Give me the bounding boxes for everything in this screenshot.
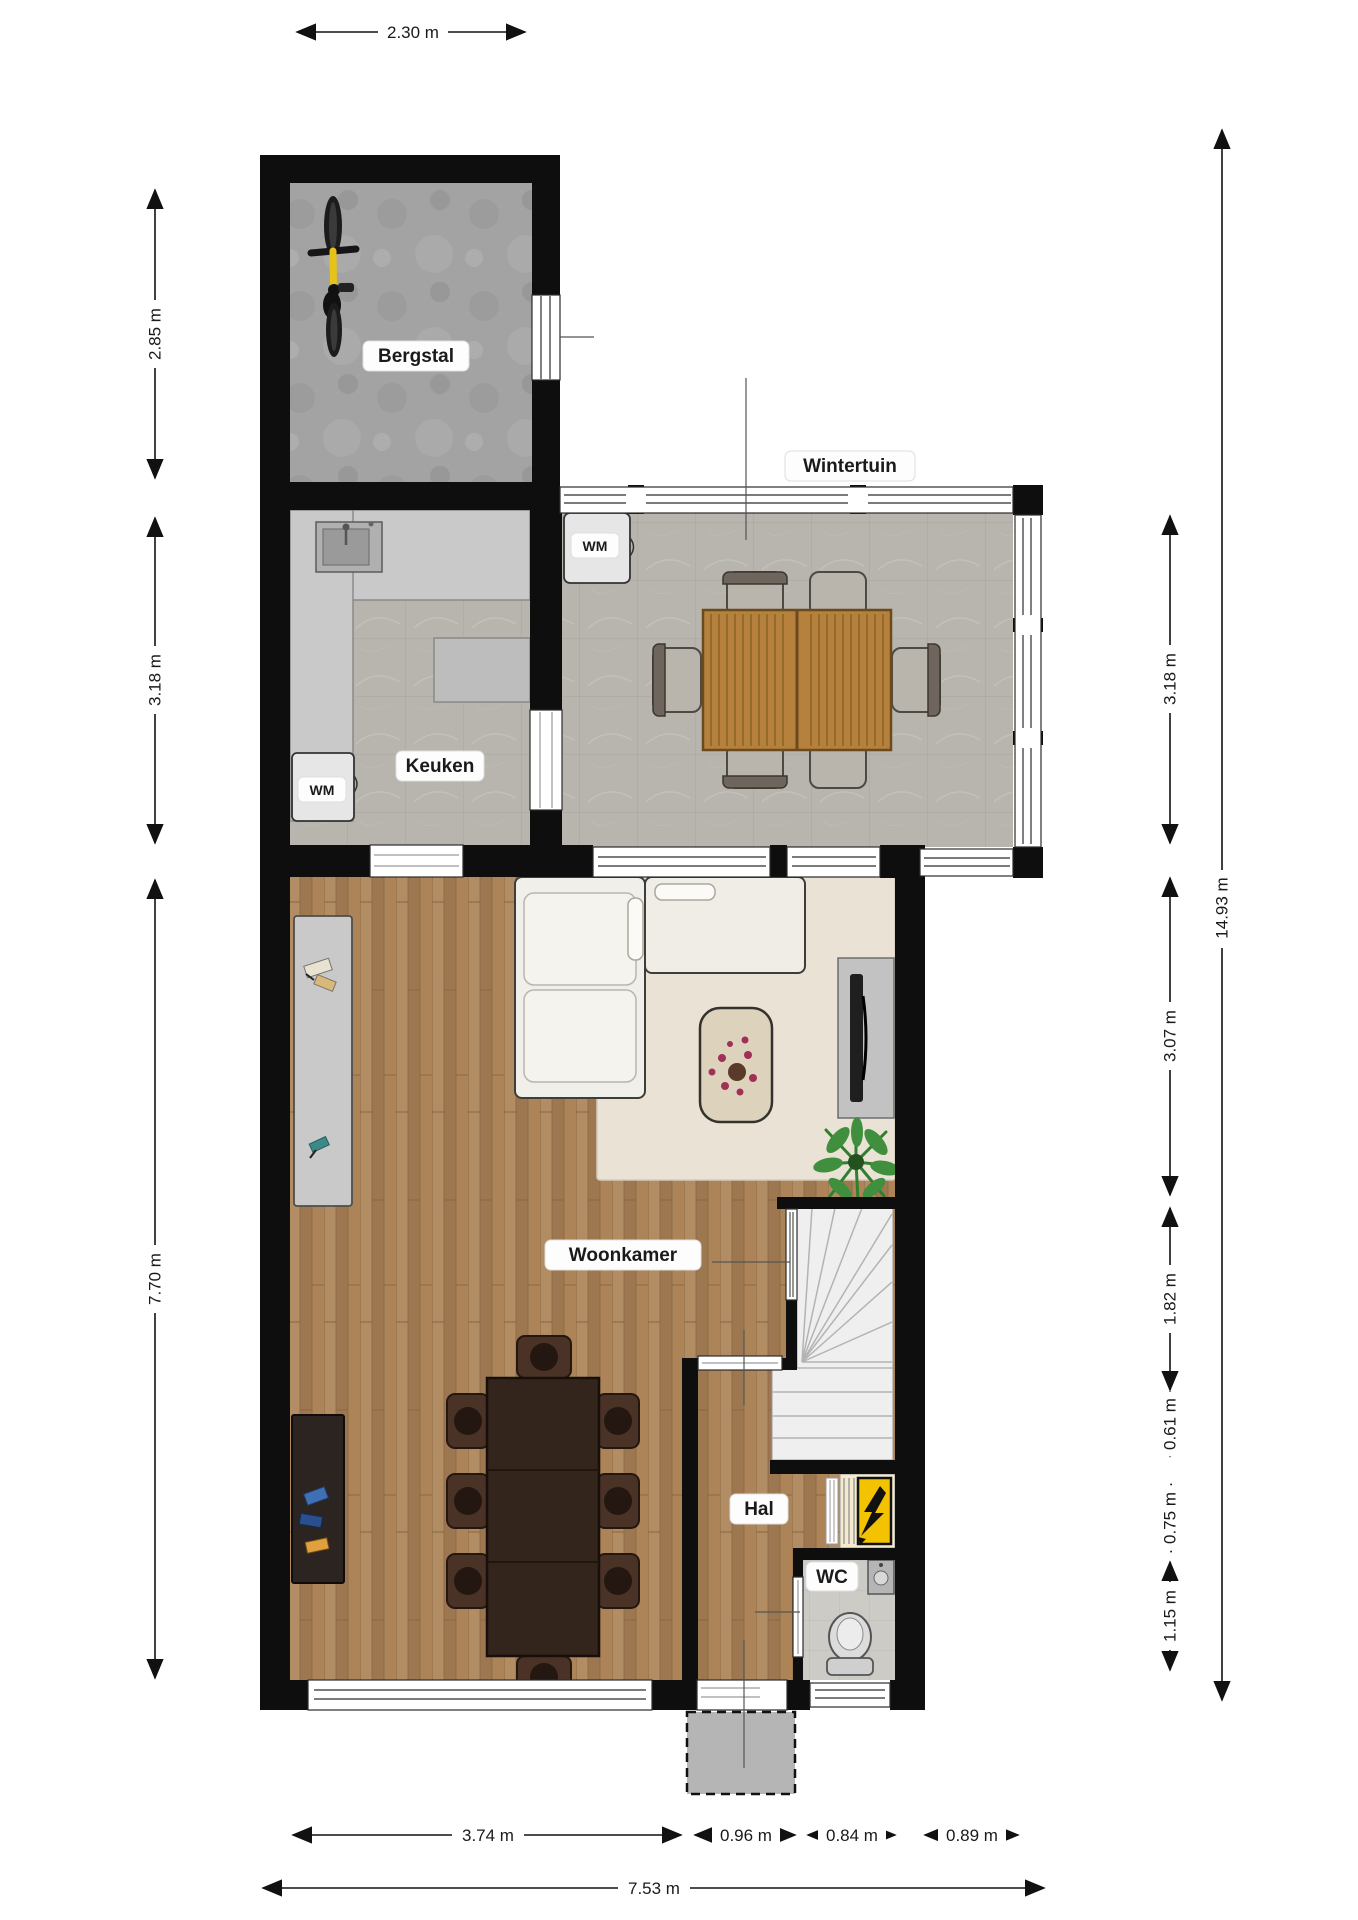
- window: [920, 849, 1013, 876]
- dim-label-bottom-wc: 0.84 m: [826, 1826, 878, 1845]
- tv: [850, 974, 863, 1102]
- sofa-pillow: [628, 898, 643, 960]
- door: [698, 1356, 782, 1370]
- window: [308, 1680, 652, 1710]
- window: [560, 487, 1013, 513]
- wc-sink: [868, 1560, 894, 1594]
- room-label-woonkamer: Woonkamer: [545, 1240, 701, 1270]
- door: [370, 845, 463, 877]
- entrance-porch: [687, 1712, 795, 1794]
- window: [532, 295, 560, 380]
- sideboard-light: [294, 916, 352, 1206]
- dim-label-bottom-overhang: 0.89 m: [946, 1826, 998, 1845]
- window: [810, 1683, 890, 1707]
- window: [1015, 515, 1041, 847]
- dim-label-left-bergstal: 2.85 m: [146, 308, 165, 360]
- room-label-text: Hal: [744, 1499, 774, 1520]
- room-label-wintertuin: Wintertuin: [785, 451, 915, 481]
- room-label-bergstal: Bergstal: [363, 341, 469, 371]
- door: [826, 1478, 838, 1544]
- room-label-text: Woonkamer: [569, 1245, 678, 1266]
- dim-label-left-woonkamer: 7.70 m: [146, 1253, 165, 1305]
- dim-label-right-total: 14.93 m: [1213, 877, 1232, 938]
- kitchen-sink: [316, 522, 382, 573]
- dim-label-bottom-entrance: 0.96 m: [720, 1826, 772, 1845]
- kitchen-block: [434, 638, 530, 702]
- dim-label-right-wintertuin: 3.18 m: [1161, 653, 1180, 705]
- dim-label-right-stairs: 1.82 m: [1161, 1273, 1180, 1325]
- toilet: [827, 1613, 873, 1675]
- door: [793, 1577, 803, 1657]
- tv-stand: [838, 958, 894, 1118]
- floorplan-canvas: Bergstal Wintertuin Keuken Woonkamer Hal…: [0, 0, 1358, 1920]
- room-label-text: Wintertuin: [803, 456, 897, 477]
- sofa-pillow: [655, 884, 715, 900]
- meter-cabinet: [840, 1474, 895, 1548]
- appliance-label-text: WM: [583, 538, 608, 554]
- room-label-text: WC: [816, 1567, 848, 1588]
- appliance-label-wm-wintertuin: WM: [571, 533, 619, 558]
- dim-label-right-wc: 1.15 m: [1161, 1590, 1180, 1642]
- dim-label-right-living: 3.07 m: [1161, 1010, 1180, 1062]
- front-door: [697, 1680, 787, 1710]
- door: [530, 710, 562, 810]
- room-label-text: Bergstal: [378, 346, 454, 367]
- appliance-label-text: WM: [310, 782, 335, 798]
- room-label-wc: WC: [806, 1562, 858, 1591]
- dim-label-top-width: 2.30 m: [387, 23, 439, 42]
- cabinet-dark: [292, 1415, 344, 1583]
- dim-label-bottom-woonkamer: 3.74 m: [462, 1826, 514, 1845]
- dim-label-right-meterkast: 0.61 m: [1161, 1398, 1180, 1450]
- room-label-keuken: Keuken: [396, 751, 484, 781]
- dim-label-left-keuken: 3.18 m: [146, 654, 165, 706]
- window: [593, 847, 880, 877]
- dim-label-bottom-total: 7.53 m: [628, 1879, 680, 1898]
- appliance-label-wm-keuken: WM: [298, 777, 346, 802]
- dining-table: [487, 1378, 599, 1656]
- room-label-text: Keuken: [406, 756, 475, 777]
- dim-label-right-mid: · 0.75 m ·: [1161, 1482, 1180, 1555]
- floorplan-page: Bergstal Wintertuin Keuken Woonkamer Hal…: [0, 0, 1358, 1920]
- room-label-hal: Hal: [730, 1494, 788, 1524]
- coffee-table: [700, 1008, 772, 1122]
- glass-panel: [786, 1209, 797, 1300]
